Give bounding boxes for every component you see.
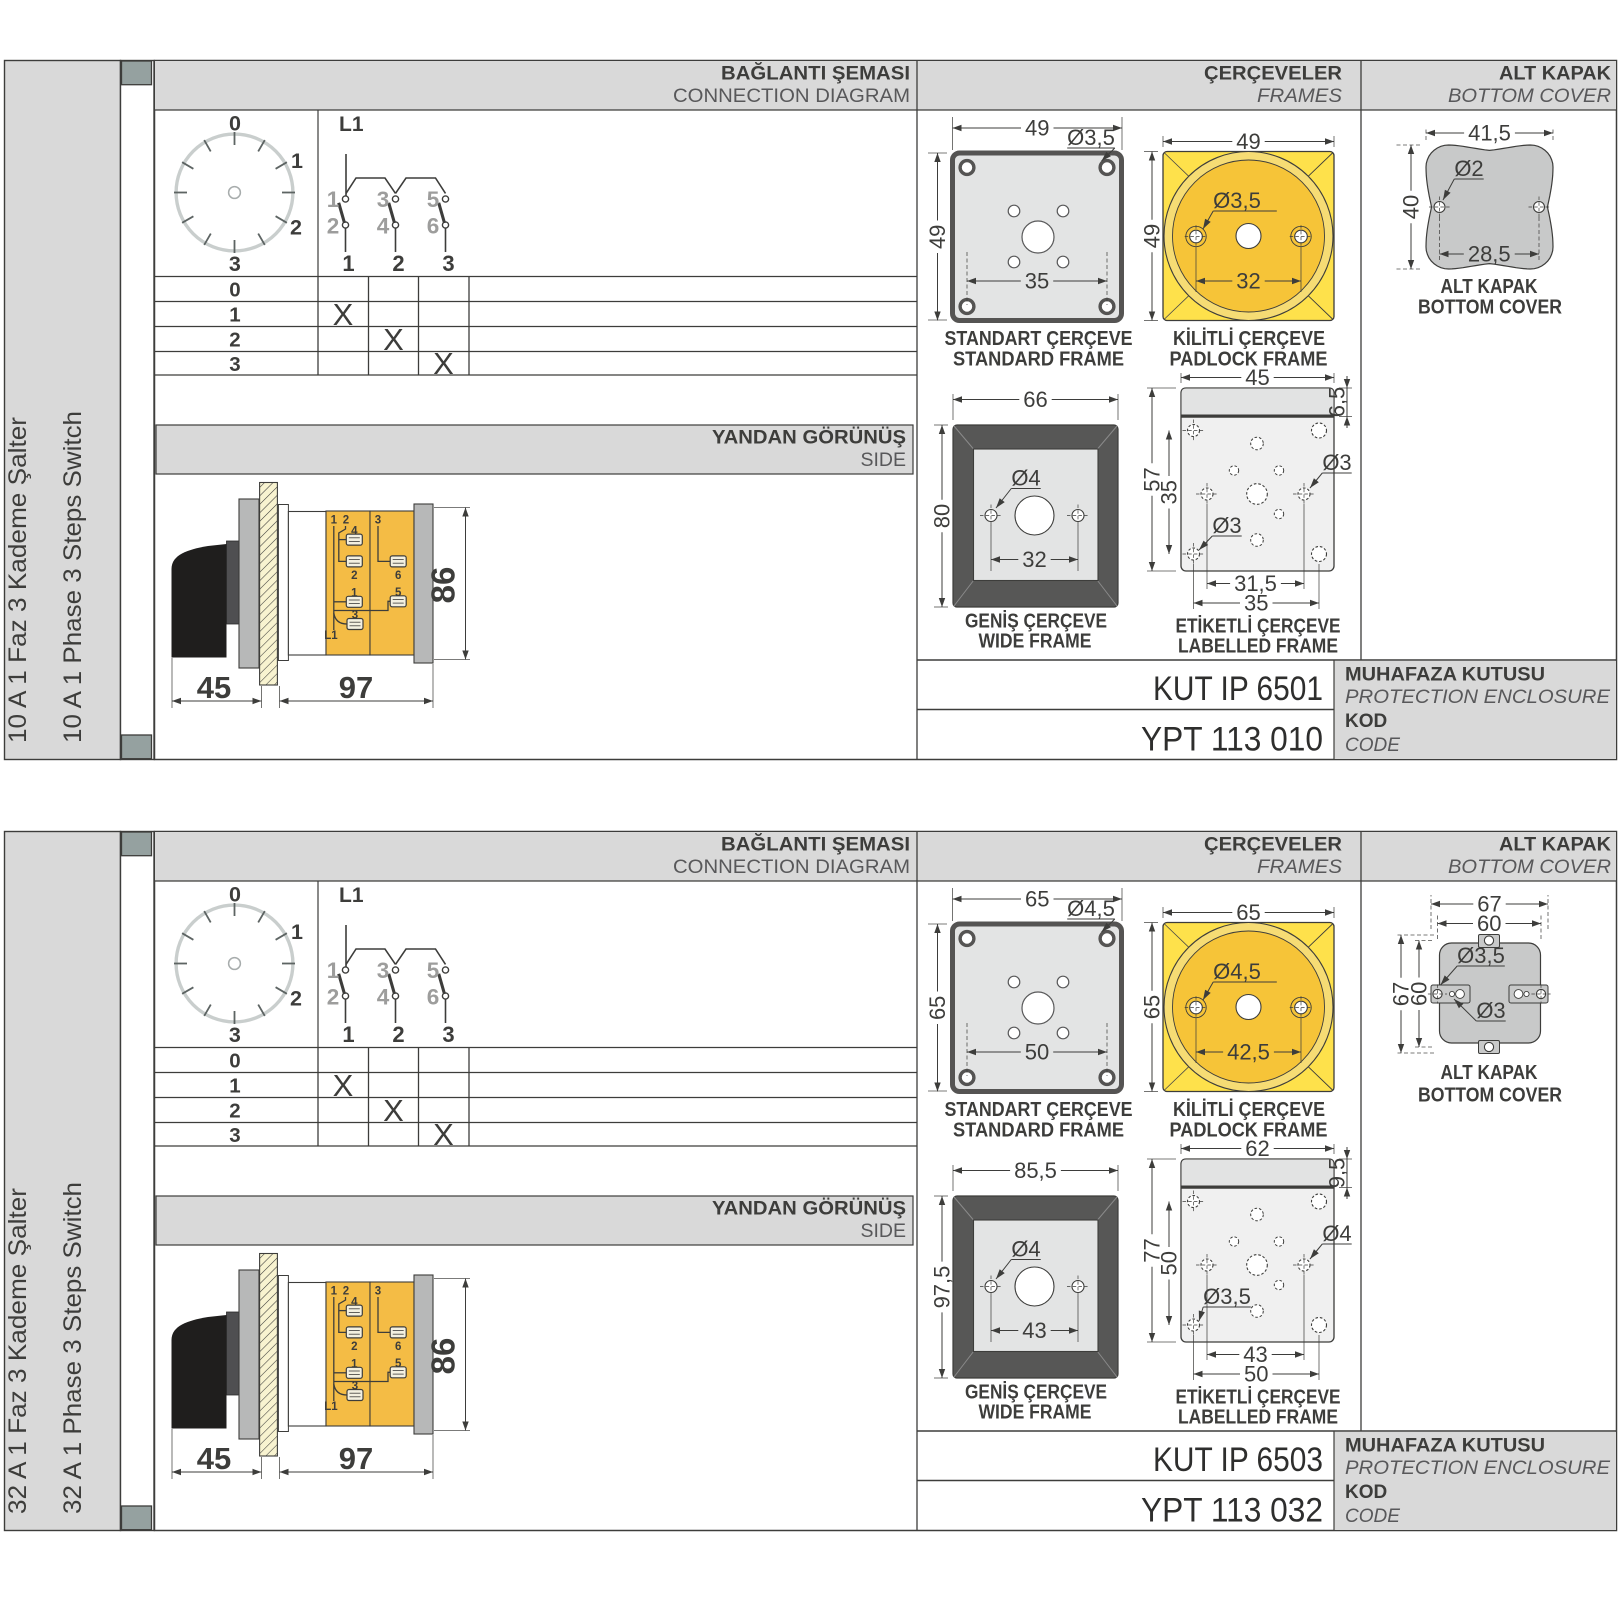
svg-text:1: 1 — [342, 1022, 354, 1047]
svg-text:1: 1 — [291, 149, 303, 173]
svg-text:Ø3: Ø3 — [1476, 998, 1505, 1023]
svg-text:35: 35 — [1025, 268, 1049, 293]
svg-text:SIDE: SIDE — [860, 449, 906, 471]
svg-text:1: 1 — [327, 958, 340, 983]
svg-text:3: 3 — [375, 515, 381, 527]
svg-text:2: 2 — [327, 214, 340, 239]
svg-text:CONNECTION DIAGRAM: CONNECTION DIAGRAM — [673, 85, 910, 107]
svg-text:STANDART ÇERÇEVE: STANDART ÇERÇEVE — [945, 328, 1133, 350]
svg-text:ALT KAPAK: ALT KAPAK — [1499, 63, 1611, 85]
svg-text:86: 86 — [425, 1338, 462, 1375]
svg-text:YANDAN GÖRÜNÜŞ: YANDAN GÖRÜNÜŞ — [712, 426, 906, 449]
svg-text:KUT IP 6503: KUT IP 6503 — [1153, 1441, 1323, 1479]
svg-text:PROTECTION ENCLOSURE: PROTECTION ENCLOSURE — [1345, 687, 1610, 708]
svg-text:60: 60 — [1406, 982, 1431, 1006]
svg-text:45: 45 — [197, 1441, 231, 1476]
svg-text:ÇERÇEVELER: ÇERÇEVELER — [1204, 834, 1342, 856]
svg-text:MUHAFAZA KUTUSU: MUHAFAZA KUTUSU — [1345, 1436, 1545, 1457]
svg-text:SIDE: SIDE — [860, 1220, 906, 1242]
svg-text:YPT 113 032: YPT 113 032 — [1141, 1492, 1323, 1530]
svg-text:ALT KAPAK: ALT KAPAK — [1499, 834, 1611, 856]
svg-text:50: 50 — [1025, 1039, 1049, 1064]
svg-text:80: 80 — [929, 504, 954, 528]
svg-text:Ø4: Ø4 — [1011, 466, 1040, 491]
svg-text:BOTTOM COVER: BOTTOM COVER — [1418, 1085, 1562, 1107]
svg-text:Ø4: Ø4 — [1011, 1237, 1040, 1262]
svg-text:35: 35 — [1156, 480, 1181, 504]
svg-text:35: 35 — [1244, 590, 1268, 615]
svg-text:2: 2 — [290, 987, 302, 1011]
svg-text:4: 4 — [351, 525, 358, 537]
svg-text:CODE: CODE — [1345, 1506, 1400, 1527]
svg-text:4: 4 — [377, 985, 390, 1010]
svg-text:KİLİTLİ ÇERÇEVE: KİLİTLİ ÇERÇEVE — [1173, 1098, 1325, 1121]
svg-text:43: 43 — [1022, 1318, 1046, 1343]
svg-text:1: 1 — [229, 304, 240, 327]
svg-text:BAĞLANTI ŞEMASI: BAĞLANTI ŞEMASI — [721, 62, 910, 85]
svg-text:STANDARD FRAME: STANDARD FRAME — [953, 1120, 1124, 1142]
svg-text:BOTTOM COVER: BOTTOM COVER — [1418, 297, 1562, 319]
svg-text:5: 5 — [395, 1358, 402, 1370]
svg-text:65: 65 — [925, 996, 950, 1020]
svg-text:ALT KAPAK: ALT KAPAK — [1441, 1062, 1538, 1084]
svg-text:28,5: 28,5 — [1468, 241, 1511, 266]
svg-text:3: 3 — [352, 1381, 358, 1393]
svg-text:Ø4,5: Ø4,5 — [1213, 959, 1261, 984]
svg-text:WIDE FRAME: WIDE FRAME — [979, 631, 1092, 653]
svg-text:3: 3 — [229, 353, 240, 376]
svg-text:97: 97 — [339, 1441, 373, 1476]
svg-text:CONNECTION DIAGRAM: CONNECTION DIAGRAM — [673, 856, 910, 878]
svg-text:49: 49 — [925, 225, 950, 249]
svg-text:2: 2 — [392, 1022, 404, 1047]
svg-text:1: 1 — [291, 920, 303, 944]
svg-text:32 A 1 Faz 3 Kademe Şalter: 32 A 1 Faz 3 Kademe Şalter — [4, 1188, 32, 1514]
svg-text:86: 86 — [425, 567, 462, 604]
svg-text:10 A 1 Phase 3 Steps Switch: 10 A 1 Phase 3 Steps Switch — [59, 411, 87, 743]
svg-text:5: 5 — [427, 958, 440, 983]
svg-text:GENİŞ ÇERÇEVE: GENİŞ ÇERÇEVE — [965, 610, 1107, 633]
svg-text:5: 5 — [427, 187, 440, 212]
svg-text:LABELLED FRAME: LABELLED FRAME — [1178, 1407, 1338, 1429]
svg-text:65: 65 — [1236, 900, 1260, 925]
svg-text:1: 1 — [331, 515, 338, 527]
svg-text:Ø3: Ø3 — [1322, 450, 1351, 475]
svg-text:2: 2 — [290, 216, 302, 240]
svg-text:6: 6 — [427, 985, 440, 1010]
svg-text:1: 1 — [327, 187, 340, 212]
svg-text:BOTTOM COVER: BOTTOM COVER — [1448, 856, 1611, 878]
svg-text:1: 1 — [351, 1359, 358, 1371]
svg-text:1: 1 — [331, 1286, 338, 1298]
svg-text:KUT IP 6501: KUT IP 6501 — [1153, 670, 1323, 708]
svg-text:FRAMES: FRAMES — [1257, 85, 1342, 107]
svg-text:BOTTOM COVER: BOTTOM COVER — [1448, 85, 1611, 107]
svg-text:Ø3: Ø3 — [1212, 513, 1241, 538]
svg-text:1: 1 — [229, 1075, 240, 1098]
svg-text:KOD: KOD — [1345, 1482, 1387, 1503]
svg-text:MUHAFAZA KUTUSU: MUHAFAZA KUTUSU — [1345, 665, 1545, 686]
svg-text:Ø3,5: Ø3,5 — [1213, 188, 1261, 213]
svg-text:Ø3,5: Ø3,5 — [1067, 125, 1115, 150]
svg-text:FRAMES: FRAMES — [1257, 856, 1342, 878]
svg-text:X: X — [333, 1068, 354, 1103]
svg-text:CODE: CODE — [1345, 735, 1400, 756]
svg-text:X: X — [383, 1093, 404, 1128]
svg-text:3: 3 — [229, 1124, 240, 1147]
svg-text:4: 4 — [377, 214, 390, 239]
svg-text:L1: L1 — [339, 884, 364, 907]
svg-text:1: 1 — [351, 588, 358, 600]
svg-text:60: 60 — [1477, 911, 1501, 936]
svg-text:2: 2 — [229, 1100, 240, 1123]
svg-text:X: X — [433, 346, 454, 381]
svg-text:2: 2 — [392, 251, 404, 276]
svg-text:3: 3 — [442, 251, 454, 276]
svg-text:32 A 1 Phase 3 Steps Switch: 32 A 1 Phase 3 Steps Switch — [59, 1182, 87, 1514]
svg-text:Ø4: Ø4 — [1322, 1221, 1351, 1246]
svg-text:Ø2: Ø2 — [1454, 156, 1483, 181]
svg-text:49: 49 — [1236, 129, 1260, 154]
svg-text:65: 65 — [1025, 886, 1049, 911]
svg-text:41,5: 41,5 — [1468, 120, 1511, 145]
svg-text:1: 1 — [342, 251, 354, 276]
svg-text:97: 97 — [339, 670, 373, 705]
svg-text:2: 2 — [229, 329, 240, 352]
svg-text:2: 2 — [343, 515, 349, 527]
svg-text:3: 3 — [377, 958, 390, 983]
svg-text:6,5: 6,5 — [1325, 387, 1350, 418]
svg-text:STANDARD FRAME: STANDARD FRAME — [953, 349, 1124, 371]
svg-text:32: 32 — [1236, 268, 1260, 293]
svg-text:3: 3 — [229, 252, 241, 276]
svg-text:X: X — [433, 1117, 454, 1152]
svg-text:3: 3 — [229, 1023, 241, 1047]
svg-text:PROTECTION ENCLOSURE: PROTECTION ENCLOSURE — [1345, 1458, 1610, 1479]
svg-text:85,5: 85,5 — [1014, 1158, 1057, 1183]
svg-text:ÇERÇEVELER: ÇERÇEVELER — [1204, 63, 1342, 85]
svg-text:97,5: 97,5 — [929, 1266, 954, 1309]
svg-text:2: 2 — [343, 1286, 349, 1298]
svg-text:32: 32 — [1022, 547, 1046, 572]
svg-text:4: 4 — [351, 1296, 358, 1308]
svg-text:2: 2 — [351, 1341, 357, 1353]
svg-text:WIDE FRAME: WIDE FRAME — [979, 1402, 1092, 1424]
svg-text:49: 49 — [1025, 115, 1049, 140]
svg-text:0: 0 — [229, 112, 241, 136]
svg-text:KİLİTLİ ÇERÇEVE: KİLİTLİ ÇERÇEVE — [1173, 327, 1325, 350]
svg-text:45: 45 — [1245, 365, 1269, 390]
svg-text:2: 2 — [351, 570, 357, 582]
svg-text:3: 3 — [442, 1022, 454, 1047]
svg-text:65: 65 — [1139, 995, 1164, 1019]
svg-text:GENİŞ ÇERÇEVE: GENİŞ ÇERÇEVE — [965, 1381, 1107, 1404]
svg-text:STANDART ÇERÇEVE: STANDART ÇERÇEVE — [945, 1099, 1133, 1121]
svg-text:ETİKETLİ ÇERÇEVE: ETİKETLİ ÇERÇEVE — [1176, 1386, 1341, 1409]
svg-text:L1: L1 — [324, 1401, 338, 1413]
svg-text:49: 49 — [1139, 224, 1164, 248]
svg-text:9,5: 9,5 — [1325, 1158, 1350, 1189]
svg-text:3: 3 — [352, 610, 358, 622]
svg-text:YANDAN GÖRÜNÜŞ: YANDAN GÖRÜNÜŞ — [712, 1197, 906, 1220]
svg-text:6: 6 — [395, 1341, 401, 1353]
svg-text:2: 2 — [327, 985, 340, 1010]
svg-text:L1: L1 — [324, 630, 338, 642]
svg-text:0: 0 — [229, 279, 240, 302]
svg-text:45: 45 — [197, 670, 231, 705]
svg-text:5: 5 — [395, 587, 402, 599]
svg-text:X: X — [383, 322, 404, 357]
svg-text:Ø4,5: Ø4,5 — [1067, 896, 1115, 921]
svg-text:0: 0 — [229, 883, 241, 907]
svg-text:ETİKETLİ ÇERÇEVE: ETİKETLİ ÇERÇEVE — [1176, 615, 1341, 638]
svg-text:L1: L1 — [339, 113, 364, 136]
svg-text:66: 66 — [1023, 387, 1047, 412]
svg-text:KOD: KOD — [1345, 711, 1387, 732]
svg-text:BAĞLANTI ŞEMASI: BAĞLANTI ŞEMASI — [721, 833, 910, 856]
svg-text:0: 0 — [229, 1050, 240, 1073]
svg-text:62: 62 — [1245, 1136, 1269, 1161]
svg-text:X: X — [333, 297, 354, 332]
svg-text:LABELLED FRAME: LABELLED FRAME — [1178, 636, 1338, 658]
svg-text:3: 3 — [377, 187, 390, 212]
svg-text:6: 6 — [427, 214, 440, 239]
svg-text:50: 50 — [1156, 1251, 1181, 1275]
svg-text:3: 3 — [375, 1286, 381, 1298]
svg-text:ALT KAPAK: ALT KAPAK — [1441, 276, 1538, 298]
svg-text:Ø3,5: Ø3,5 — [1203, 1284, 1251, 1309]
svg-text:50: 50 — [1244, 1361, 1268, 1386]
svg-text:10 A 1 Faz 3 Kademe Şalter: 10 A 1 Faz 3 Kademe Şalter — [4, 417, 32, 743]
svg-text:Ø3,5: Ø3,5 — [1457, 943, 1505, 968]
svg-text:42,5: 42,5 — [1227, 1039, 1270, 1064]
svg-text:YPT 113 010: YPT 113 010 — [1141, 721, 1323, 759]
svg-text:6: 6 — [395, 570, 401, 582]
svg-text:40: 40 — [1398, 195, 1423, 219]
